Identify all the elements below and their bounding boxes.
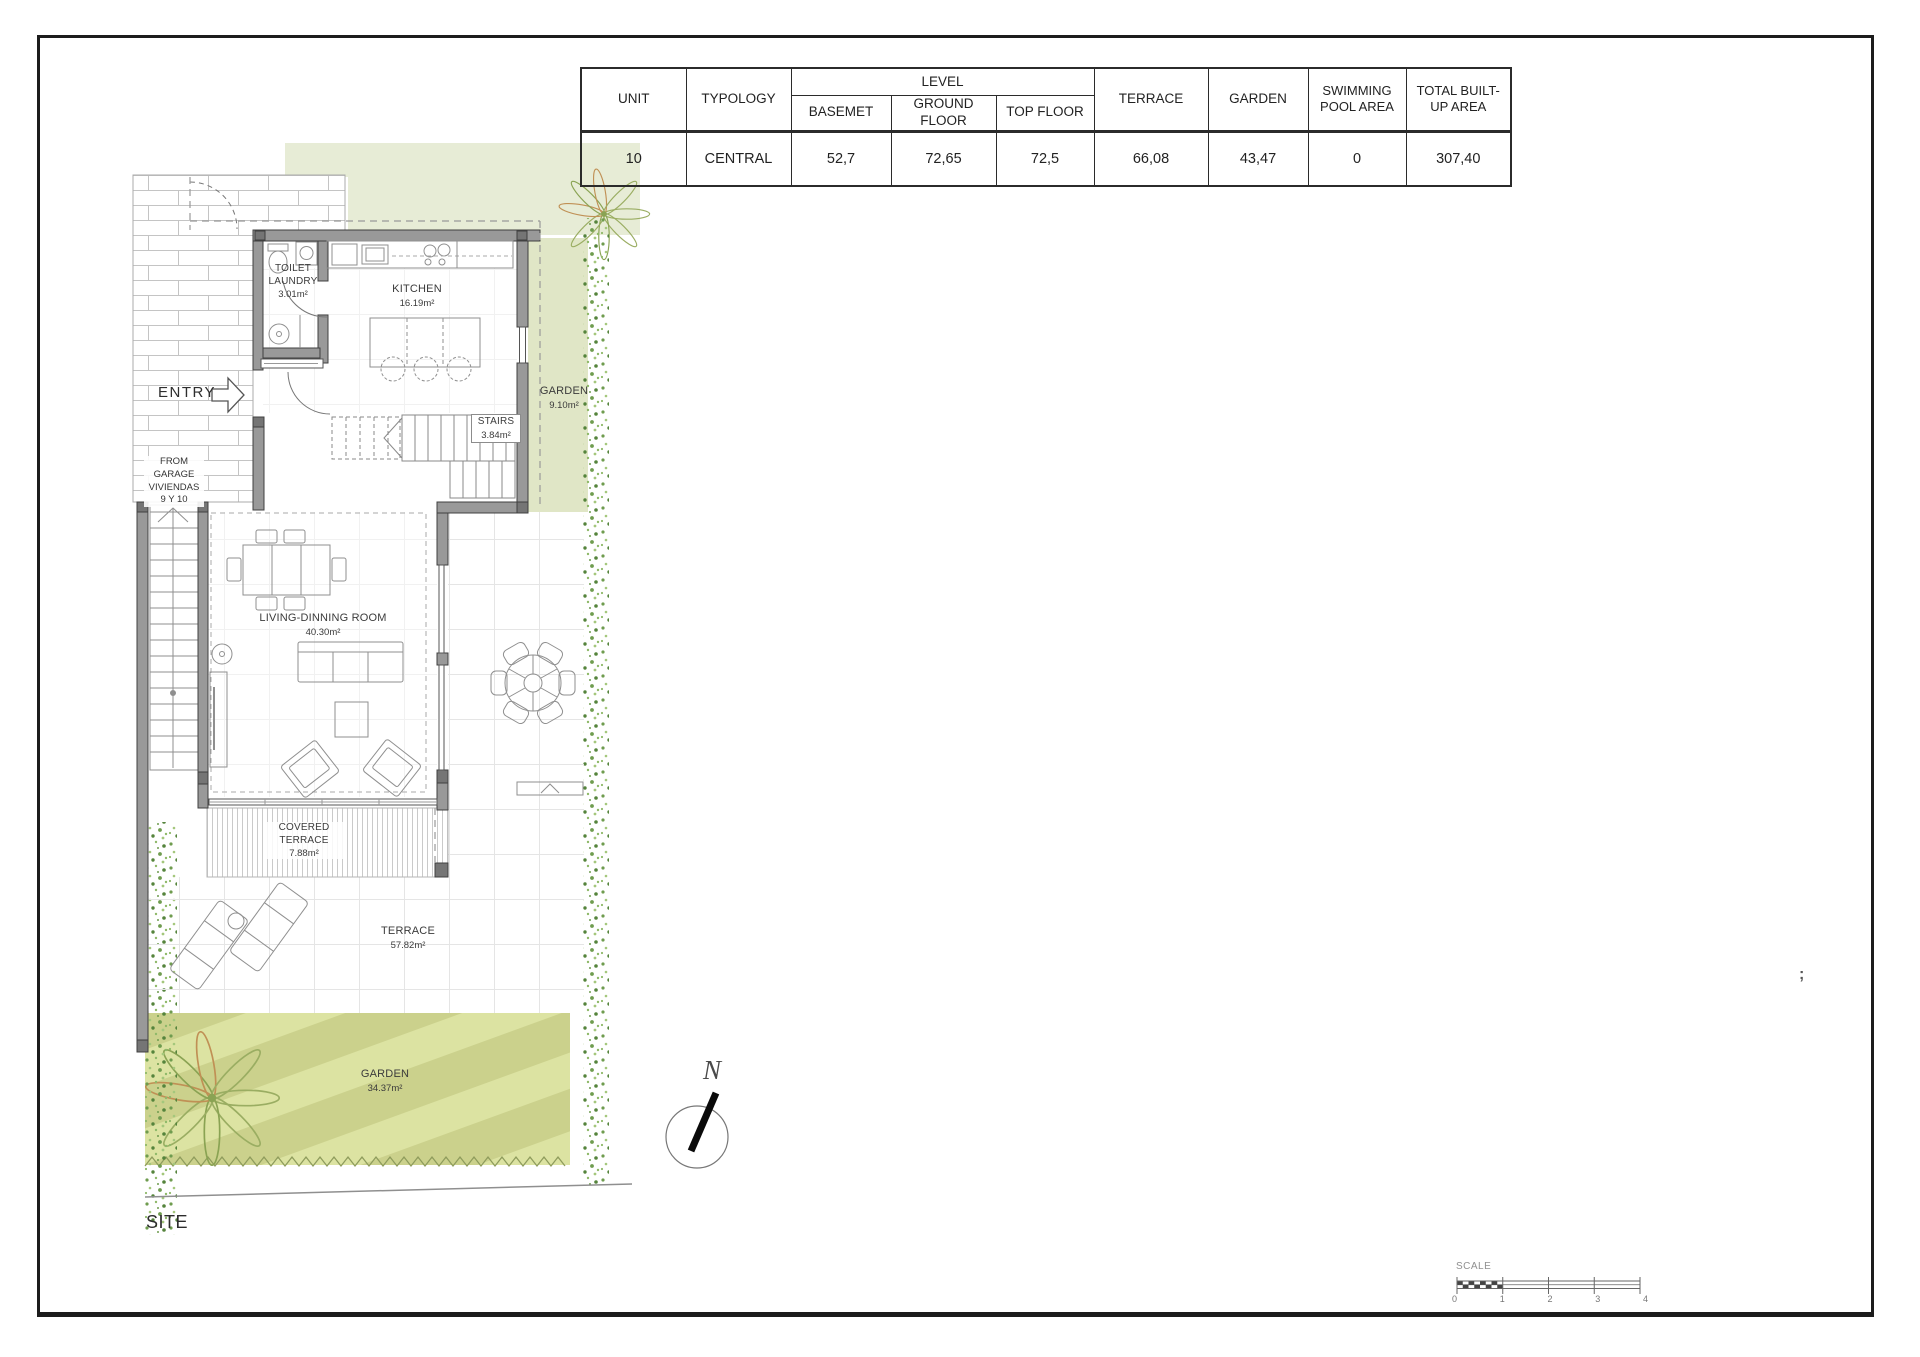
external-stair [150,505,198,770]
scale-label: SCALE [1456,1261,1491,1272]
scale-tick: 3 [1595,1294,1600,1304]
value-terrace: 66,08 [1094,131,1208,186]
header-garden: GARDEN [1208,68,1308,131]
room-label-kitchen: KITCHEN 16.19m² [377,283,457,309]
value-typology: CENTRAL [686,131,791,186]
north-label: N [703,1055,721,1086]
value-basement: 52,7 [791,131,891,186]
room-label-garden-side: GARDEN 9.10m² [534,385,594,411]
scale-tick: 1 [1500,1294,1505,1304]
kitchen-counter [327,241,513,268]
header-ground-floor: GROUND FLOOR [891,96,996,132]
scan-artifact-mark: ; [1799,966,1804,984]
header-top-floor: TOP FLOOR [996,96,1094,132]
room-label-toilet-laundry: TOILET LAUNDRY 3.01m² [261,263,325,300]
side-garden-area [528,238,588,512]
room-label-stairs: STAIRS 3.84m² [471,414,521,443]
area-summary-table: UNIT TYPOLOGY LEVEL TERRACE GARDEN SWIMM… [580,67,1512,187]
value-unit: 10 [581,131,686,186]
scale-bar [1457,1277,1640,1294]
scale-tick: 4 [1643,1294,1648,1304]
floor-plan-drawing [0,0,1920,1357]
value-total: 307,40 [1406,131,1511,186]
header-typology: TYPOLOGY [686,68,791,131]
plan-sheet: UNIT TYPOLOGY LEVEL TERRACE GARDEN SWIMM… [0,0,1920,1357]
value-ground-floor: 72,65 [891,131,996,186]
room-label-garden-main: GARDEN 34.37m² [345,1068,425,1094]
header-basement: BASEMET [791,96,891,132]
scale-tick-labels: 0 1 2 3 4 [1452,1294,1648,1304]
header-terrace: TERRACE [1094,68,1208,131]
value-swimming-pool: 0 [1308,131,1406,186]
room-label-living-dining: LIVING-DINNING ROOM 40.30m² [243,612,403,638]
from-garage-label: FROM GARAGE VIVIENDAS 9 Y 10 [144,456,204,507]
north-compass-icon [666,1093,728,1168]
header-total-built-up-area: TOTAL BUILT-UP AREA [1406,68,1511,131]
scale-tick: 0 [1452,1294,1457,1304]
scale-tick: 2 [1547,1294,1552,1304]
header-level: LEVEL [791,68,1094,96]
entry-label: ENTRY [158,384,216,401]
header-swimming-pool-area: SWIMMING POOL AREA [1308,68,1406,131]
value-garden: 43,47 [1208,131,1308,186]
unit-data-row: 10 CENTRAL 52,7 72,65 72,5 66,08 43,47 0… [581,131,1511,186]
value-top-floor: 72,5 [996,131,1094,186]
room-label-terrace: TERRACE 57.82m² [368,925,448,951]
site-boundary-line [145,1184,632,1197]
site-label: SITE [146,1212,188,1233]
header-unit: UNIT [581,68,686,131]
room-label-covered-terrace: COVERED TERRACE 7.88m² [265,822,343,859]
